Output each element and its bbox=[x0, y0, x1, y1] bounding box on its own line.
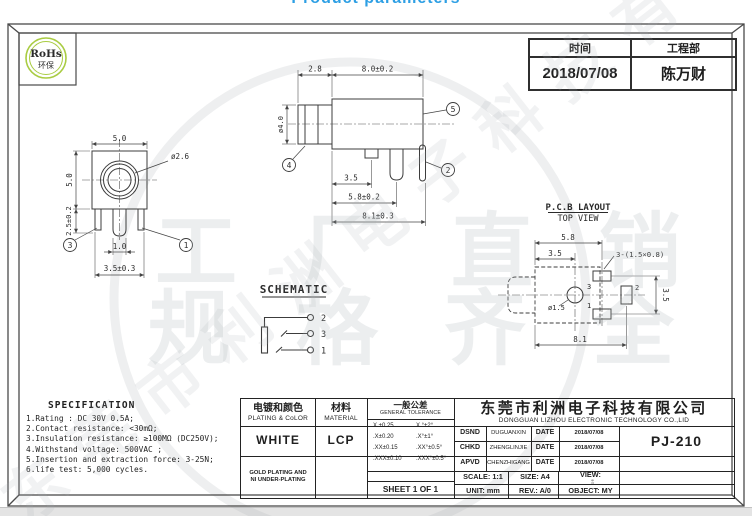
pcb-pad-1: 1 bbox=[587, 302, 591, 310]
dim-front-shoulder: 2.5±0.2 bbox=[65, 206, 73, 236]
dim-front-pin-pitch: 1.0 bbox=[113, 242, 127, 251]
plating-value: WHITE bbox=[241, 426, 315, 456]
company-name-en: DONGGUAN LIZHOU ELECTRONIC TECHNOLOGY CO… bbox=[499, 417, 689, 424]
side-view: 2.8 8.0±0.2 ø4.0 3.5 5.8±0.2 8.1±0.3 4 5… bbox=[277, 65, 460, 227]
dim-front-width: 5.0 bbox=[113, 134, 127, 143]
material-header-cn: 材料 bbox=[331, 403, 351, 415]
dsnd-date: 2018/07/08 bbox=[559, 426, 619, 441]
pcb-slot-note: 3-(1.5×0.8) bbox=[616, 250, 664, 259]
apvd-date-label: DATE bbox=[531, 456, 559, 471]
spec-line: 6.life test: 5,000 cycles. bbox=[26, 465, 238, 475]
scale-label: SCALE: 1:1 bbox=[454, 471, 508, 484]
material-value: LCP bbox=[315, 426, 367, 456]
chkd-date-label: DATE bbox=[531, 441, 559, 456]
dim-pcb-width: 5.8 bbox=[561, 233, 575, 242]
drawing-sheet-page: Product parameters RoHs 环保 bbox=[0, 0, 752, 516]
size-label: SIZE: A4 bbox=[508, 471, 558, 484]
pcb-pad-2: 2 bbox=[635, 284, 639, 292]
dsnd-label: DSND bbox=[454, 426, 486, 441]
tolerance-row-4b: .XXX°±0.5° bbox=[416, 456, 446, 462]
rohs-subtext: 环保 bbox=[38, 60, 54, 70]
view-label: VIEW: bbox=[558, 471, 619, 484]
tolerance-row-1b: X.°±2° bbox=[416, 423, 433, 429]
callout-5: 5 bbox=[451, 105, 456, 114]
tolerance-header: 一般公差 GENERAL TOLERANCE bbox=[367, 399, 454, 419]
unit-label: UNIT: mm bbox=[454, 484, 508, 498]
part-number: PJ-210 bbox=[619, 426, 734, 456]
dim-front-pin-span: 3.5±0.3 bbox=[104, 264, 136, 273]
spec-line: 5.Insertion and extraction force: 3-25N; bbox=[26, 455, 238, 465]
spec-line: 3.Insulation resistance: ≥100MΩ (DC250V)… bbox=[26, 434, 238, 444]
apvd-date: 2018/07/08 bbox=[559, 456, 619, 471]
tolerance-row-2a: .X±0.20 bbox=[373, 434, 394, 440]
plating-note: GOLD PLATING AND NI UNDER-PLATING bbox=[241, 456, 315, 498]
plating-header: 电镀和颜色 PLATING & CoLOR bbox=[241, 399, 315, 426]
specification-title: SPECIFICATION bbox=[48, 400, 238, 411]
chkd-name: ZHENGLINJIE bbox=[486, 441, 531, 456]
schematic-pin-1: 1 bbox=[321, 347, 326, 357]
dim-side-tip: 2.8 bbox=[308, 65, 322, 74]
dsnd-date-label: DATE bbox=[531, 426, 559, 441]
dim-side-total: 8.1±0.3 bbox=[362, 212, 394, 221]
callout-2: 2 bbox=[446, 166, 451, 175]
dim-front-hole: ø2.6 bbox=[171, 152, 190, 161]
header-time-label: 时间 bbox=[530, 40, 632, 58]
plating-header-en: PLATING & CoLOR bbox=[248, 415, 308, 422]
material-header: 材料 MATERIAL bbox=[315, 399, 367, 426]
pcb-subtitle: TOP VIEW bbox=[558, 214, 600, 224]
plating-note-line2: NI UNDER-PLATING bbox=[251, 477, 306, 484]
material-header-en: MATERIAL bbox=[324, 415, 358, 422]
pcb-hole-label: ø1.5 bbox=[548, 304, 565, 312]
dim-side-pin1: 3.5 bbox=[344, 174, 358, 183]
dim-pcb-pitch: 3.5 bbox=[661, 288, 670, 302]
schematic: SCHEMATIC 2 3 1 bbox=[260, 283, 329, 357]
apvd-label: APVD bbox=[454, 456, 486, 471]
dim-side-pin2: 5.8±0.2 bbox=[348, 193, 380, 202]
chkd-label: CHKD bbox=[454, 441, 486, 456]
dsnd-name: DUGUANXIN bbox=[486, 426, 531, 441]
pcb-pad-3: 3 bbox=[587, 283, 591, 291]
callout-3: 3 bbox=[68, 241, 73, 250]
tolerance-row-3b: .XX°±0.5° bbox=[416, 445, 442, 451]
company-block: 东莞市利洲电子科技有限公司 DONGGUAN LIZHOU ELECTRONIC… bbox=[454, 399, 734, 426]
callout-4: 4 bbox=[287, 161, 292, 170]
plating-header-cn: 电镀和颜色 bbox=[253, 403, 303, 415]
tolerance-row-3a: .XX±0.15 bbox=[373, 445, 398, 451]
company-name-cn: 东莞市利洲电子科技有限公司 bbox=[480, 400, 708, 417]
schematic-pin-3: 3 bbox=[321, 330, 326, 340]
schematic-pin-2: 2 bbox=[321, 314, 326, 324]
view-label-text: VIEW: bbox=[580, 471, 601, 479]
tolerance-row-4a: .XXX±0.10 bbox=[373, 456, 402, 462]
dim-pcb-total: 8.1 bbox=[573, 335, 587, 344]
specification-block: SPECIFICATION 1.Rating : DC 30V 0.5A; 2.… bbox=[26, 400, 238, 475]
dim-side-dia: ø4.0 bbox=[277, 116, 285, 133]
header-table: 时间 工程部 2018/07/08 陈万财 bbox=[528, 38, 737, 91]
schematic-title: SCHEMATIC bbox=[260, 283, 329, 296]
callout-1: 1 bbox=[184, 241, 189, 250]
plating-note-line1: GOLD PLATING AND bbox=[249, 470, 306, 477]
spec-line: 4.Withstand voltage: 500VAC ; bbox=[26, 445, 238, 455]
rohs-badge: RoHs 环保 bbox=[19, 33, 76, 85]
spec-line: 1.Rating : DC 30V 0.5A; bbox=[26, 414, 238, 424]
front-view-centerlines bbox=[82, 139, 157, 240]
tolerance-row-2b: .X°±1° bbox=[416, 434, 433, 440]
dim-side-body: 8.0±0.2 bbox=[362, 65, 394, 74]
spec-line: 2.Contact resistance: <30mΩ; bbox=[26, 424, 238, 434]
title-block: 电镀和颜色 PLATING & CoLOR 材料 MATERIAL 一般公差 G… bbox=[240, 398, 735, 499]
pcb-title: P.C.B LAYOUT bbox=[545, 203, 611, 213]
sheet-label: SHEET 1 OF 1 bbox=[367, 481, 454, 498]
tolerance-header-en: GENERAL TOLERANCE bbox=[380, 411, 441, 417]
rev-label: REV.: A/0 bbox=[508, 484, 558, 498]
chkd-date: 2018/07/08 bbox=[559, 441, 619, 456]
dim-pcb-hole-x: 3.5 bbox=[548, 249, 562, 258]
rohs-text: RoHs bbox=[30, 48, 62, 60]
tolerance-row-1a: X.±0.25 bbox=[373, 423, 394, 429]
header-dept-value: 陈万财 bbox=[632, 58, 735, 89]
object-label: OBJECT: MY bbox=[558, 484, 619, 498]
dim-front-height: 5.0 bbox=[65, 173, 74, 187]
header-time-value: 2018/07/08 bbox=[530, 58, 632, 89]
apvd-name: CHENZHIGANG bbox=[486, 456, 531, 471]
header-dept-label: 工程部 bbox=[632, 40, 735, 58]
